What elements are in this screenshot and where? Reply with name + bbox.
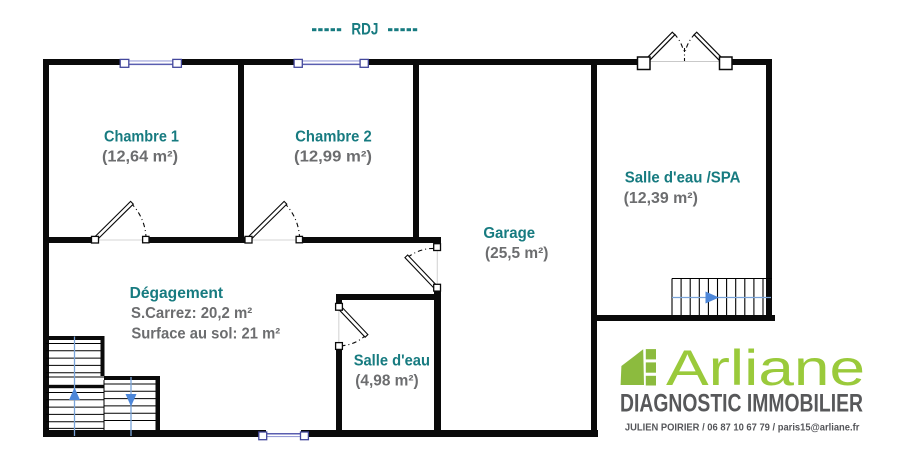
svg-text:(4,98 m²): (4,98 m²) — [355, 373, 418, 390]
svg-text:Garage: Garage — [483, 225, 535, 242]
svg-text:Dégagement: Dégagement — [130, 285, 224, 302]
svg-text:(12,64 m²): (12,64 m²) — [102, 148, 178, 165]
svg-text:S.Carrez: 20,2 m²: S.Carrez: 20,2 m² — [131, 305, 252, 322]
svg-text:Chambre 1: Chambre 1 — [104, 129, 179, 146]
svg-text:Salle d'eau: Salle d'eau — [354, 353, 430, 370]
svg-text:Salle d'eau /SPA: Salle d'eau /SPA — [625, 170, 741, 187]
svg-text:(25,5 m²): (25,5 m²) — [485, 245, 548, 262]
svg-text:DIAGNOSTIC IMMOBILIER: DIAGNOSTIC IMMOBILIER — [620, 389, 863, 417]
svg-text:(12,39 m²): (12,39 m²) — [624, 190, 698, 207]
svg-text:RDJ: RDJ — [351, 20, 378, 38]
svg-text:Chambre 2: Chambre 2 — [295, 129, 372, 146]
svg-text:(12,99 m²): (12,99 m²) — [294, 148, 372, 165]
svg-text:JULIEN POIRIER / 06 87 10 67 7: JULIEN POIRIER / 06 87 10 67 79 / paris1… — [625, 422, 860, 434]
svg-text:Surface au sol: 21 m²: Surface au sol: 21 m² — [131, 326, 280, 343]
svg-text:Arliane: Arliane — [666, 340, 865, 396]
